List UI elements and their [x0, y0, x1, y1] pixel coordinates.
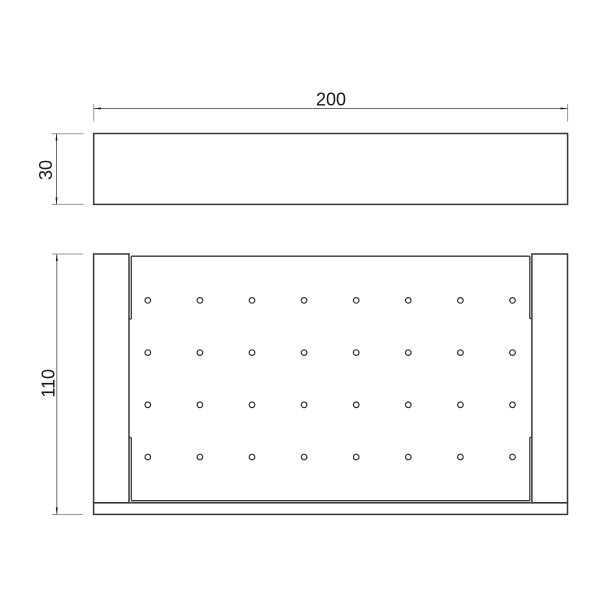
svg-text:200: 200: [316, 89, 346, 109]
svg-text:110: 110: [39, 369, 59, 398]
svg-text:30: 30: [36, 160, 56, 180]
